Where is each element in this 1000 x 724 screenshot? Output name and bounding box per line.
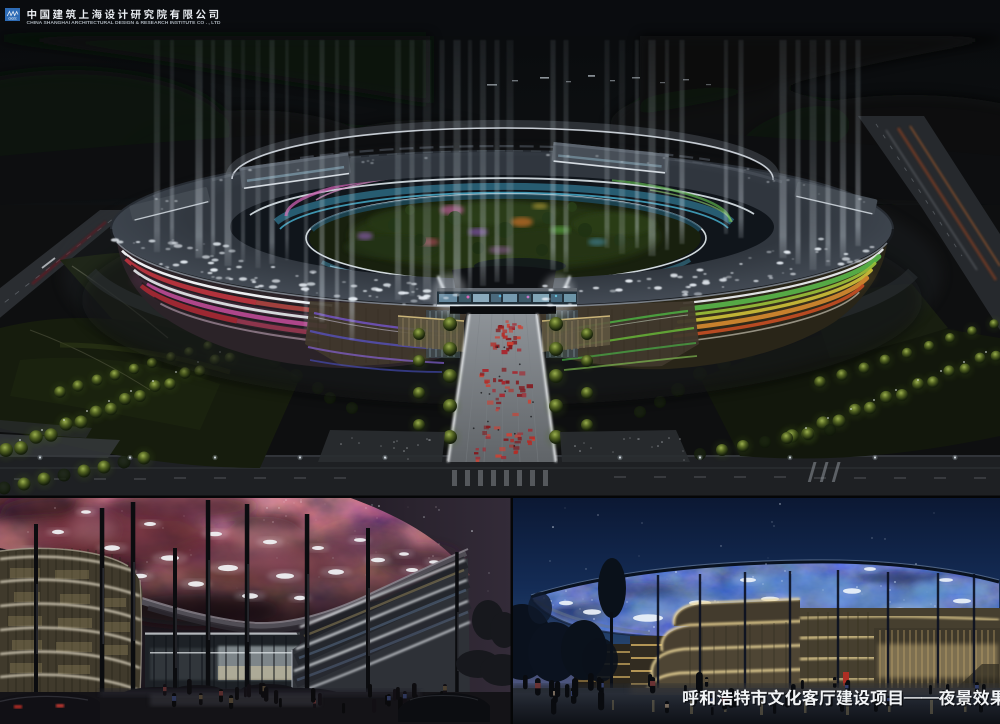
- svg-text:CHINA SHANGHAI ARCHITECTURAL D: CHINA SHANGHAI ARCHITECTURAL DESIGN & RE…: [27, 20, 221, 25]
- svg-text:CSCEC: CSCEC: [8, 17, 17, 20]
